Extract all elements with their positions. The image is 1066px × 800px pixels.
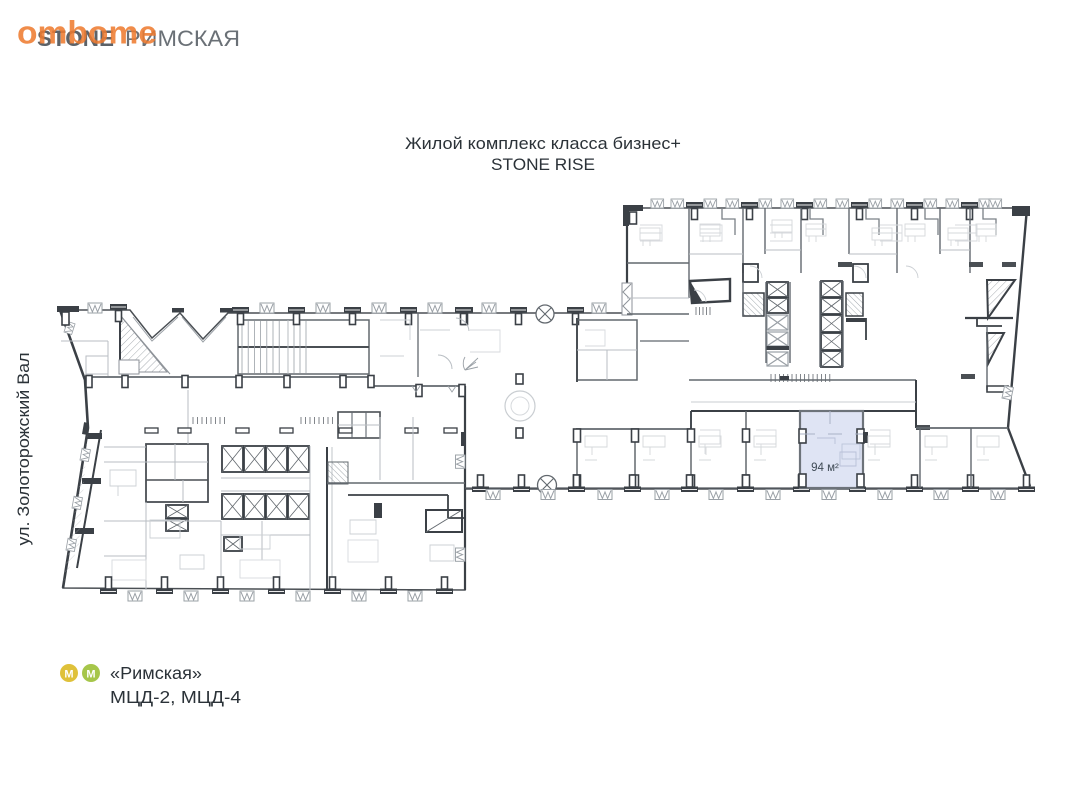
svg-text:Жилой комплекс класса бизнес+: Жилой комплекс класса бизнес+ xyxy=(405,135,681,153)
svg-text:ombome: ombome xyxy=(17,15,157,51)
svg-text:М: М xyxy=(86,669,95,681)
svg-text:STONE RISE: STONE RISE xyxy=(491,156,595,174)
svg-text:«Римская»: «Римская» xyxy=(110,663,202,683)
svg-text:94 м²: 94 м² xyxy=(811,462,839,474)
svg-text:М: М xyxy=(64,669,73,681)
svg-text:ул. Золоторожский Вал: ул. Золоторожский Вал xyxy=(14,353,33,546)
svg-text:МЦД-2, МЦД-4: МЦД-2, МЦД-4 xyxy=(110,687,241,707)
